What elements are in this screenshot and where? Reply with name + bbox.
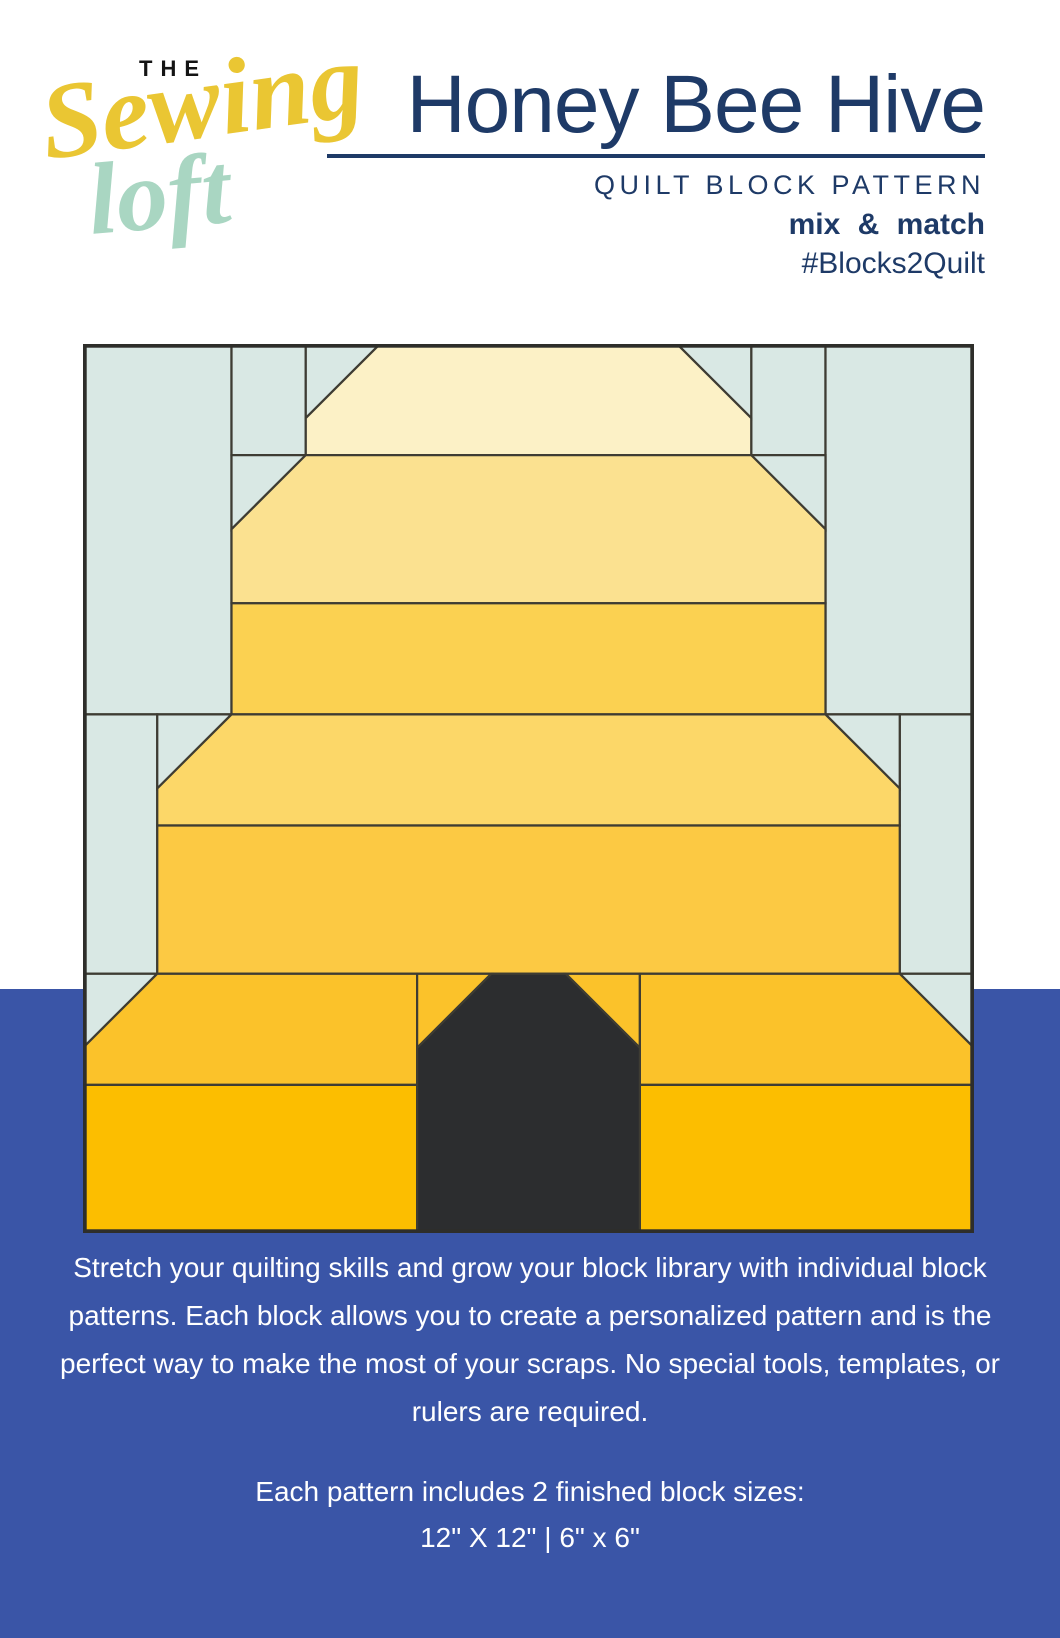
block-sizes-heading: Each pattern includes 2 finished block s… xyxy=(50,1469,1010,1515)
header: Honey Bee Hive QUILT BLOCK PATTERN mix &… xyxy=(327,60,985,281)
quilt-piece-hive-band7-left xyxy=(83,1085,417,1233)
title-divider xyxy=(327,154,985,158)
quilt-piece-bg-rect-mid-right xyxy=(900,714,974,973)
quilt-piece-bg-rect-mid-left xyxy=(83,714,157,973)
quilt-piece-bg-rect-b xyxy=(751,344,825,455)
hashtag-label: #Blocks2Quilt xyxy=(327,247,985,281)
quilt-piece-hive-band4 xyxy=(157,714,900,825)
quilt-piece-hive-band5 xyxy=(157,826,900,974)
honey-bee-hive-block-diagram xyxy=(83,344,974,1233)
quilt-piece-hive-band3 xyxy=(232,603,826,714)
quilt-piece-hive-band2 xyxy=(232,455,826,603)
quilt-piece-hive-band7-right xyxy=(640,1085,974,1233)
subtitle-quilt-block-pattern: QUILT BLOCK PATTERN xyxy=(327,170,985,201)
quilt-piece-hive-band1-cap xyxy=(306,344,752,455)
quilt-piece-bg-rect-a xyxy=(232,344,306,455)
quilt-piece-bg-rect-top-left xyxy=(83,344,232,714)
block-sizes: Each pattern includes 2 finished block s… xyxy=(50,1469,1010,1561)
logo-the-label: THE xyxy=(139,56,207,82)
page-title: Honey Bee Hive xyxy=(327,60,985,150)
quilt-piece-bg-rect-top-right xyxy=(826,344,975,714)
sewing-loft-logo: Sewing THE loft xyxy=(0,0,360,300)
tagline-mix-and-match: mix & match xyxy=(327,208,985,242)
description-paragraph: Stretch your quilting skills and grow yo… xyxy=(50,1244,1010,1436)
block-sizes-value: 12" X 12" | 6" x 6" xyxy=(50,1515,1010,1561)
logo-loft-script: loft xyxy=(83,130,234,259)
